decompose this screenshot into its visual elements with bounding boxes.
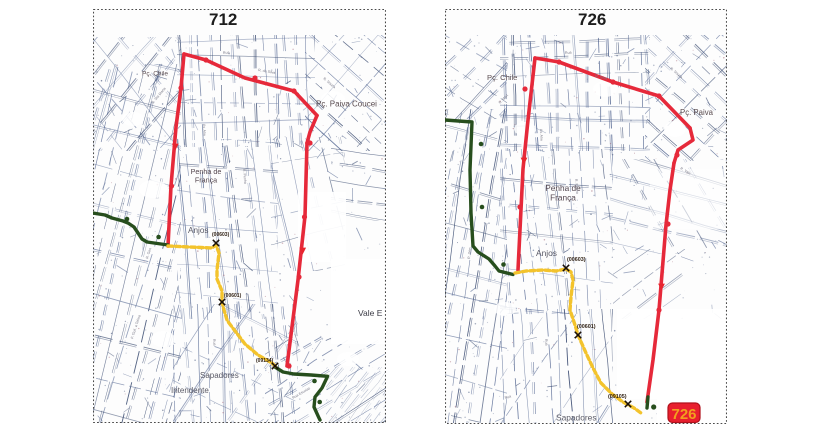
svg-text:(09134): (09134) <box>256 358 274 364</box>
svg-text:Sapadores: Sapadores <box>200 371 239 380</box>
svg-text:Anjos: Anjos <box>188 226 208 235</box>
svg-text:Anjos: Anjos <box>536 248 557 258</box>
svg-text:Pç. Chile: Pç. Chile <box>487 73 517 82</box>
svg-text:(09105): (09105) <box>608 394 627 400</box>
svg-text:726: 726 <box>671 406 696 423</box>
svg-text:Intendente: Intendente <box>171 386 209 395</box>
svg-text:(00603): (00603) <box>567 257 586 263</box>
svg-text:(00601): (00601) <box>224 293 242 299</box>
svg-text:França: França <box>195 176 217 185</box>
svg-text:Pç. Paiva: Pç. Paiva <box>680 108 714 117</box>
svg-text:(00603): (00603) <box>212 232 230 238</box>
svg-text:Pç. Paiva Coucei: Pç. Paiva Coucei <box>316 100 377 109</box>
svg-text:Vale E: Vale E <box>358 308 383 318</box>
svg-text:(00601): (00601) <box>577 324 596 330</box>
svg-text:Av. Alm: Av. Alm <box>202 124 206 136</box>
svg-text:Pç. Chile: Pç. Chile <box>142 71 168 78</box>
svg-text:Rua: Rua <box>544 339 549 346</box>
svg-text:Rua: Rua <box>565 51 572 55</box>
svg-text:Sapadores: Sapadores <box>556 413 597 423</box>
svg-text:França: França <box>550 193 576 203</box>
svg-text:Rua: Rua <box>212 339 217 346</box>
svg-text:Av. Alm: Av. Alm <box>539 129 543 141</box>
svg-text:Rua: Rua <box>223 50 230 55</box>
